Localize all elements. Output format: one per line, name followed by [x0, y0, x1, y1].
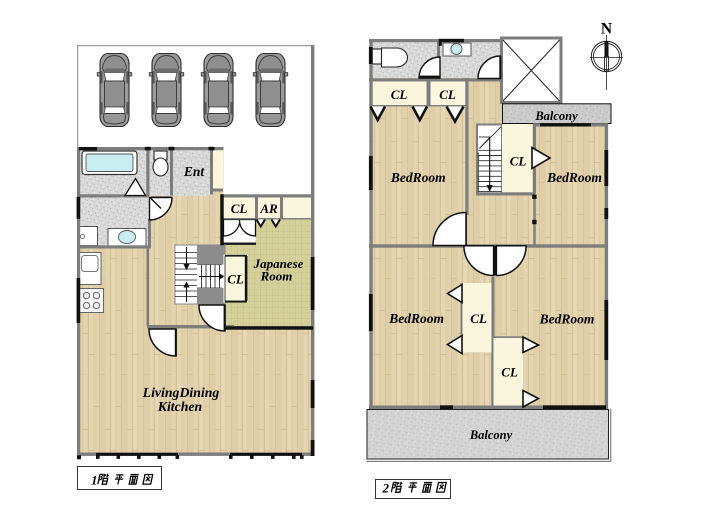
svg-text:1: 1 [91, 472, 98, 487]
svg-text:BedRoom: BedRoom [388, 311, 444, 326]
svg-text:LivingDining: LivingDining [142, 385, 220, 400]
svg-text:Kitchen: Kitchen [157, 399, 202, 414]
svg-text:BedRoom: BedRoom [390, 170, 446, 185]
svg-text:CL: CL [227, 272, 244, 287]
svg-text:BedRoom: BedRoom [546, 170, 602, 185]
svg-text:2: 2 [382, 480, 390, 495]
svg-text:CL: CL [470, 311, 487, 326]
svg-text:Room: Room [260, 269, 293, 284]
svg-text:N: N [601, 21, 612, 38]
svg-text:BedRoom: BedRoom [539, 312, 595, 327]
svg-text:CL: CL [391, 87, 408, 102]
svg-text:CL: CL [439, 87, 456, 102]
svg-text:CL: CL [510, 154, 527, 169]
svg-text:CL: CL [231, 201, 248, 216]
svg-text:Balcony: Balcony [534, 109, 578, 123]
svg-text:CL: CL [501, 365, 518, 380]
svg-text:AR: AR [259, 201, 278, 216]
svg-text:Balcony: Balcony [469, 428, 513, 442]
svg-text:Ent: Ent [183, 164, 206, 179]
